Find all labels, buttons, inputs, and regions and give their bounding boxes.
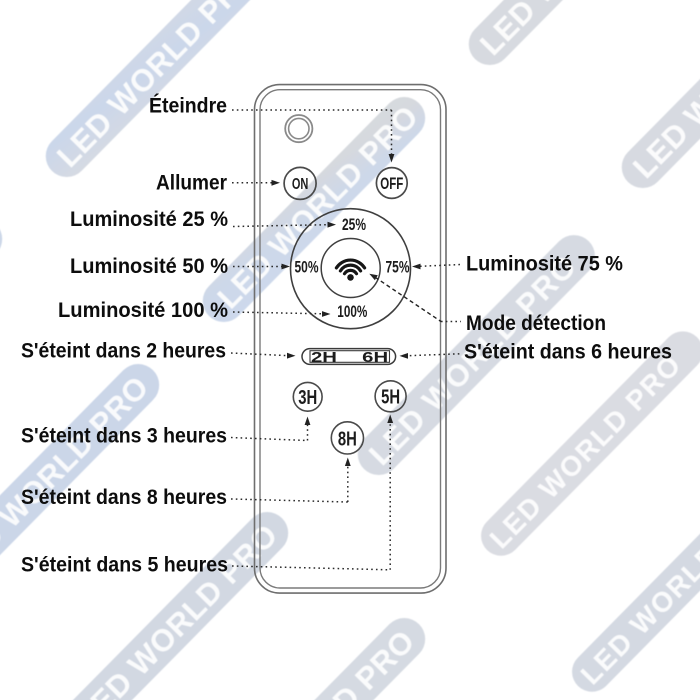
svg-text:Mode détection: Mode détection (466, 311, 606, 335)
svg-text:5H: 5H (381, 386, 400, 409)
svg-text:S'éteint dans 5 heures: S'éteint dans 5 heures (21, 552, 228, 576)
svg-text:Luminosité 100 %: Luminosité 100 % (58, 298, 228, 322)
svg-text:Luminosité 75 %: Luminosité 75 % (466, 251, 623, 275)
svg-text:25%: 25% (342, 216, 366, 234)
svg-text:8H: 8H (338, 427, 357, 450)
svg-text:50%: 50% (295, 258, 319, 276)
svg-text:S'éteint dans 2 heures: S'éteint dans 2 heures (21, 338, 226, 362)
svg-text:S'éteint dans 6 heures: S'éteint dans 6 heures (464, 340, 672, 364)
svg-text:75%: 75% (386, 258, 410, 276)
svg-text:3H: 3H (298, 386, 317, 409)
svg-text:ON: ON (292, 176, 309, 193)
svg-text:S'éteint dans 3 heures: S'éteint dans 3 heures (21, 424, 227, 448)
svg-text:2H: 2H (311, 350, 337, 366)
svg-text:Éteindre: Éteindre (149, 92, 227, 117)
svg-text:OFF: OFF (380, 174, 403, 193)
svg-text:100%: 100% (337, 303, 367, 321)
svg-text:Luminosité 50 %: Luminosité 50 % (70, 254, 228, 278)
svg-text:Allumer: Allumer (156, 170, 228, 194)
svg-text:S'éteint dans 8 heures: S'éteint dans 8 heures (21, 485, 227, 509)
svg-text:Luminosité 25 %: Luminosité 25 % (70, 207, 228, 231)
svg-text:6H: 6H (362, 350, 388, 366)
